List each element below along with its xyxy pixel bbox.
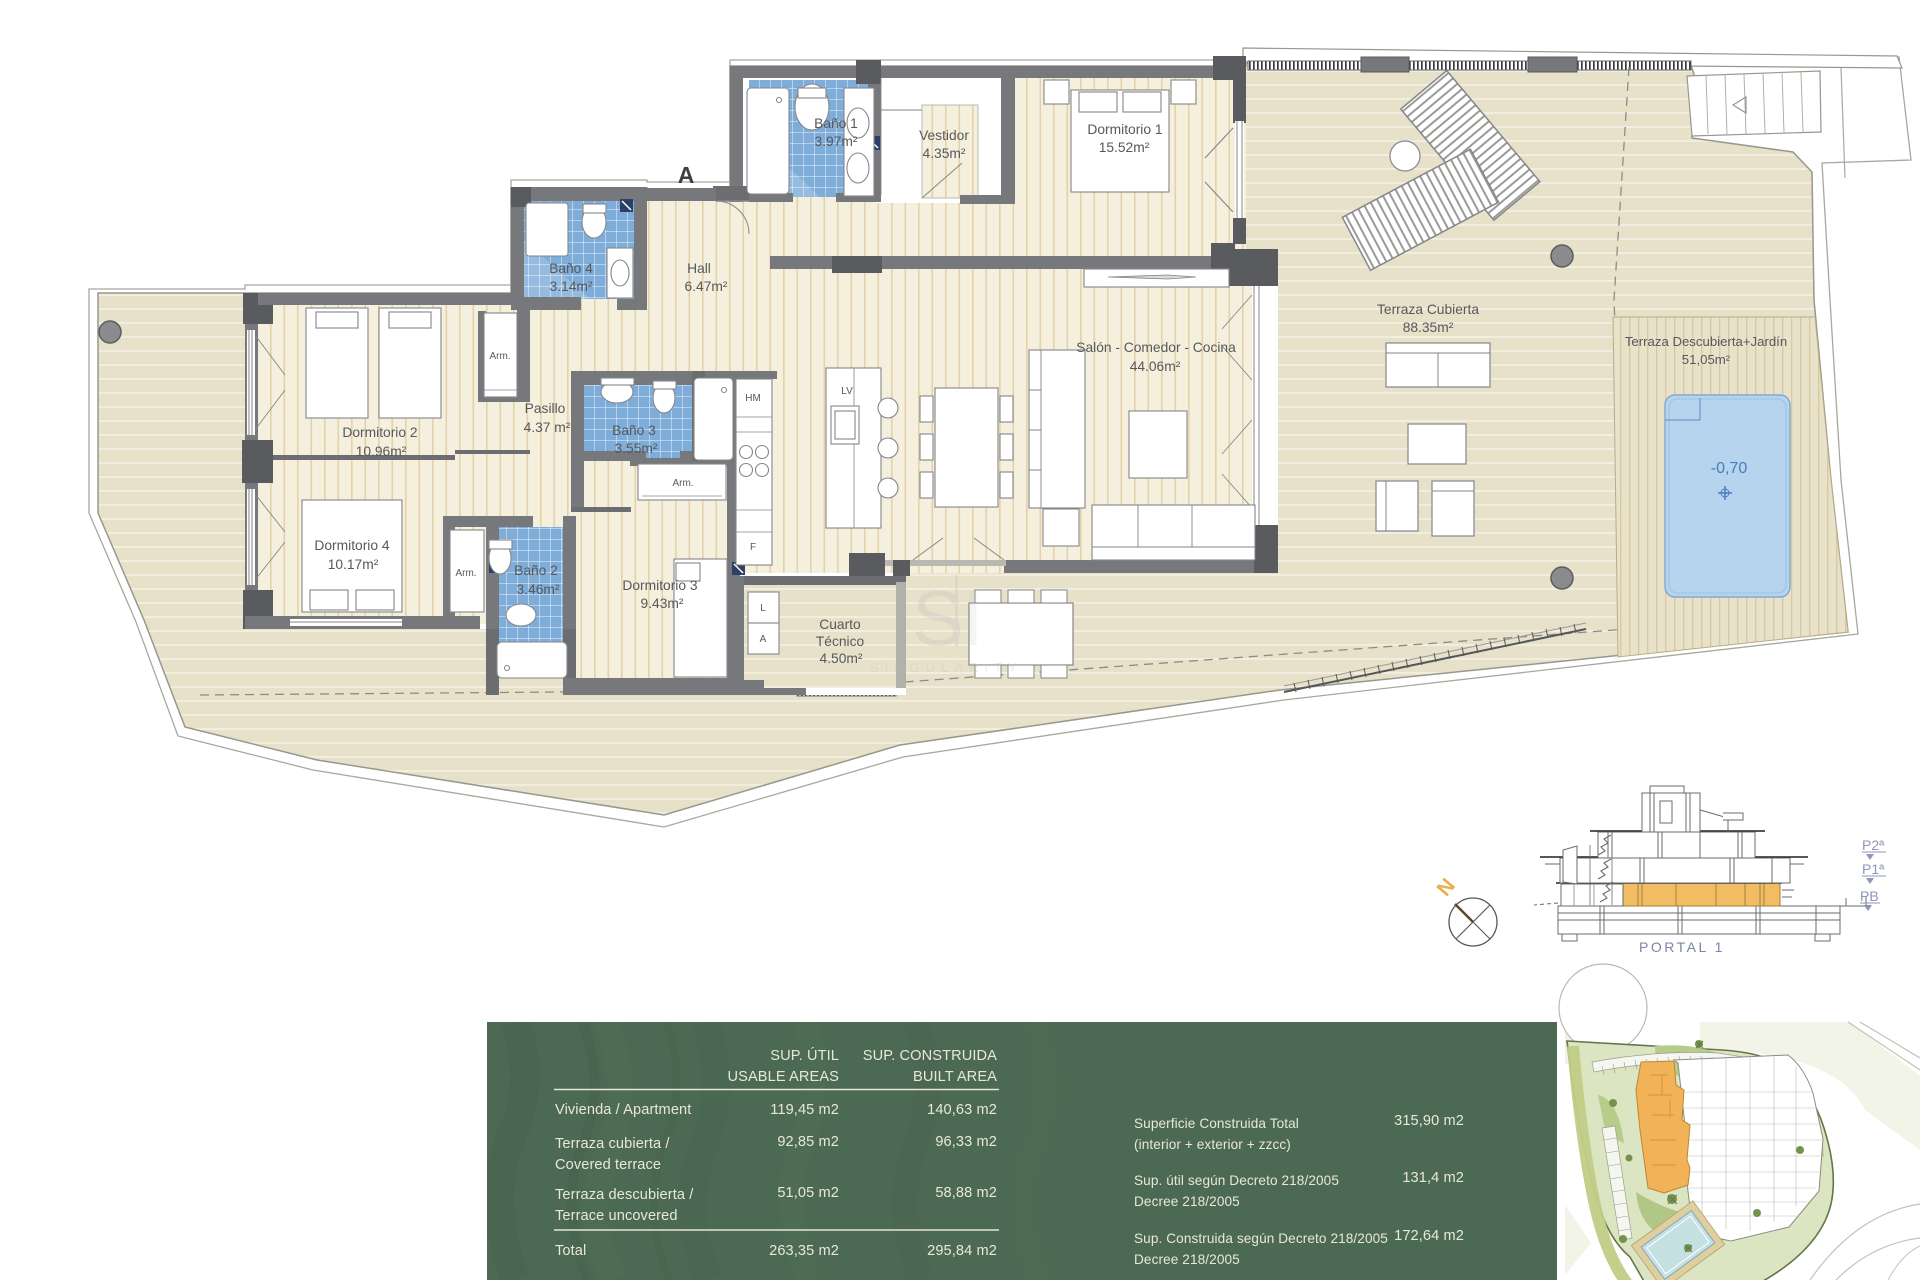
- svg-text:A: A: [678, 162, 695, 188]
- svg-text:PORTAL 1: PORTAL 1: [1639, 939, 1725, 955]
- svg-text:Dormitorio 1: Dormitorio 1: [1087, 122, 1162, 137]
- svg-text:F: F: [750, 542, 756, 553]
- svg-text:3.55m²: 3.55m²: [615, 441, 658, 456]
- svg-text:A: A: [760, 634, 767, 645]
- svg-text:3.46m²: 3.46m²: [517, 582, 560, 597]
- svg-text:9.43m²: 9.43m²: [641, 596, 684, 611]
- svg-text:Hall: Hall: [687, 261, 711, 276]
- svg-text:15.52m²: 15.52m²: [1099, 140, 1150, 155]
- svg-text:-0,70: -0,70: [1711, 460, 1748, 477]
- svg-text:4.35m²: 4.35m²: [923, 146, 966, 161]
- svg-text:Dormitorio 2: Dormitorio 2: [342, 425, 417, 440]
- svg-text:Baño 4: Baño 4: [549, 261, 593, 276]
- svg-text:Pasillo: Pasillo: [525, 401, 566, 416]
- svg-text:44.06m²: 44.06m²: [1130, 359, 1181, 374]
- svg-text:4.50m²: 4.50m²: [820, 651, 863, 666]
- svg-text:4.37 m²: 4.37 m²: [524, 420, 571, 435]
- svg-text:Dormitorio 3: Dormitorio 3: [622, 578, 697, 593]
- svg-text:88.35m²: 88.35m²: [1403, 320, 1454, 335]
- svg-text:Baño 2: Baño 2: [514, 563, 558, 578]
- svg-text:Baño 3: Baño 3: [612, 423, 656, 438]
- svg-text:Terraza Cubierta: Terraza Cubierta: [1377, 302, 1479, 317]
- svg-text:51,05m²: 51,05m²: [1682, 352, 1731, 367]
- svg-text:LV: LV: [841, 386, 853, 397]
- svg-text:Arm.: Arm.: [672, 478, 693, 489]
- svg-text:10.17m²: 10.17m²: [328, 557, 379, 572]
- svg-text:Vestidor: Vestidor: [919, 128, 969, 143]
- svg-text:3.97m²: 3.97m²: [815, 134, 858, 149]
- svg-text:P2ª: P2ª: [1862, 837, 1885, 853]
- svg-text:Arm.: Arm.: [489, 351, 510, 362]
- svg-text:10.96m²: 10.96m²: [356, 444, 407, 459]
- svg-text:6.47m²: 6.47m²: [685, 279, 728, 294]
- svg-text:SINGULARITY: SINGULARITY: [870, 660, 1023, 675]
- svg-text:Arm.: Arm.: [455, 568, 476, 579]
- svg-text:P1ª: P1ª: [1862, 861, 1885, 877]
- svg-text:Baño 1: Baño 1: [814, 116, 858, 131]
- svg-text:Terraza Descubierta+Jardín: Terraza Descubierta+Jardín: [1625, 334, 1787, 349]
- svg-text:Dormitorio 4: Dormitorio 4: [314, 538, 389, 553]
- svg-text:Salón - Comedor - Cocina: Salón - Comedor - Cocina: [1076, 340, 1236, 355]
- svg-text:N: N: [1433, 874, 1460, 900]
- svg-text:3.14m²: 3.14m²: [550, 279, 593, 294]
- svg-text:HM: HM: [745, 393, 761, 404]
- svg-text:Cuarto: Cuarto: [819, 617, 861, 632]
- svg-text:I: I: [962, 574, 984, 662]
- svg-text:L: L: [760, 603, 766, 614]
- svg-text:Técnico: Técnico: [816, 634, 865, 649]
- svg-text:PB: PB: [1860, 888, 1879, 904]
